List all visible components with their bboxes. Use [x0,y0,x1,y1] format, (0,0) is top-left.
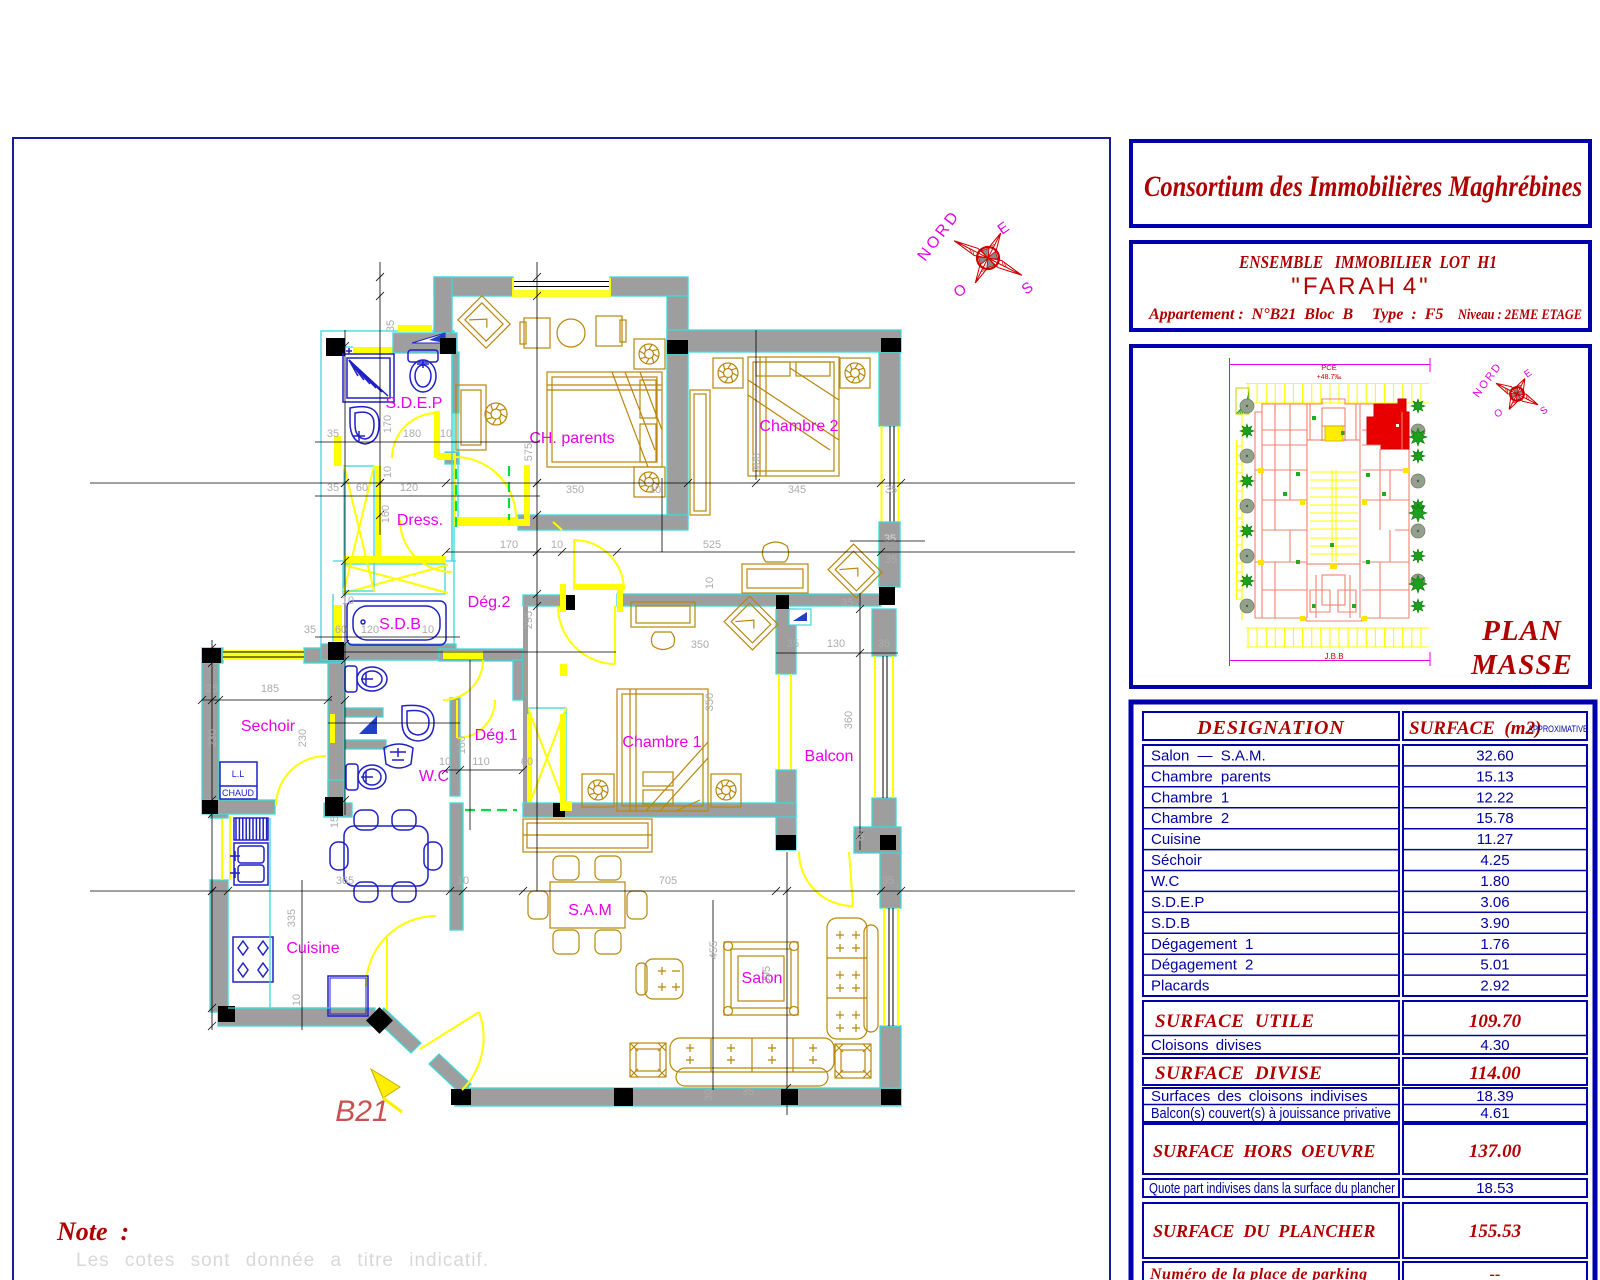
svg-text:S.D.B: S.D.B [379,616,421,633]
svg-text:35: 35 [787,638,799,650]
svg-text:Consortium des Immobilières Ma: Consortium des Immobilières Maghrébines [1144,170,1582,203]
svg-text:185: 185 [261,683,279,695]
svg-text:4.25: 4.25 [1480,852,1509,869]
svg-text:137.00: 137.00 [1469,1141,1522,1162]
svg-text:10: 10 [704,577,716,589]
svg-text:455: 455 [708,941,720,959]
svg-text:Chambre 2: Chambre 2 [1151,810,1229,827]
svg-text:35: 35 [304,624,316,636]
svg-text:SURFACE HORS OEUVRE: SURFACE HORS OEUVRE [1153,1141,1375,1161]
svg-text:10: 10 [422,624,434,636]
svg-text:1.80: 1.80 [1480,873,1509,890]
svg-text:Dégagement 2: Dégagement 2 [1151,957,1253,974]
svg-text:120: 120 [400,482,418,494]
svg-text:30: 30 [703,1089,715,1101]
svg-text:5.01: 5.01 [1480,957,1509,974]
svg-text:Niveau : 2EME ETAGE: Niveau : 2EME ETAGE [1457,307,1582,323]
svg-text:Balcon: Balcon [805,748,854,765]
svg-text:35: 35 [742,1086,754,1098]
svg-text:35: 35 [885,484,897,496]
svg-text:60: 60 [356,482,368,494]
svg-text:J.B.B: J.B.B [1324,652,1343,661]
svg-text:109.70: 109.70 [1469,1011,1522,1032]
svg-text:35: 35 [385,320,397,332]
svg-text:Dress.: Dress. [397,512,443,529]
svg-text:365: 365 [336,875,354,887]
svg-text:S.D.B: S.D.B [1151,915,1190,932]
svg-text:35: 35 [885,554,897,566]
svg-text:15.78: 15.78 [1476,810,1514,827]
svg-text:35: 35 [327,482,339,494]
svg-text:+48.7‰: +48.7‰ [1317,374,1342,381]
svg-text:Surfaces des cloisons indivise: Surfaces des cloisons indivises [1151,1088,1368,1105]
svg-text:230: 230 [297,729,309,747]
svg-text:Appartement : N°B21 Bloc B: Appartement : N°B21 Bloc B [1148,306,1354,323]
svg-text:Cuisine: Cuisine [286,940,339,957]
svg-text:10: 10 [440,428,452,440]
svg-text:400: 400 [751,453,763,471]
svg-text:35: 35 [878,638,890,650]
svg-text:10: 10 [457,875,469,887]
svg-text:PCE: PCE [1321,363,1336,372]
svg-text:170: 170 [500,539,518,551]
svg-text:3.90: 3.90 [1480,915,1509,932]
svg-text:2.92: 2.92 [1480,978,1509,995]
svg-text:25: 25 [206,683,218,695]
svg-text:10: 10 [439,756,451,768]
svg-text:CH. parents: CH. parents [529,430,614,447]
svg-text:350: 350 [566,484,584,496]
svg-text:160: 160 [456,736,468,754]
svg-text:3.06: 3.06 [1480,894,1509,911]
svg-text:15.13: 15.13 [1476,768,1514,785]
svg-text:ENSEMBLE IMMOBILIER LOT H1: ENSEMBLE IMMOBILIER LOT H1 [1238,252,1497,272]
svg-text:32.60: 32.60 [1476,748,1514,765]
svg-text:705: 705 [659,875,677,887]
svg-text:L.L: L.L [232,769,245,779]
svg-text:S.D.E.P: S.D.E.P [386,395,443,412]
svg-text:395: 395 [761,966,773,984]
svg-text:10: 10 [291,994,303,1006]
svg-text:S.A.M: S.A.M [568,902,612,919]
svg-text:SURFACE DIVISE: SURFACE DIVISE [1155,1063,1322,1084]
svg-text:35: 35 [884,533,896,545]
svg-text:335: 335 [286,909,298,927]
svg-text:575: 575 [523,443,535,461]
svg-text:CHAUD: CHAUD [222,788,255,798]
svg-text:Chambre 1: Chambre 1 [1151,789,1229,806]
svg-text:SURFACE UTILE: SURFACE UTILE [1155,1011,1314,1032]
svg-text:Chambre parents: Chambre parents [1151,768,1271,785]
svg-text:60: 60 [855,829,867,841]
svg-text:Cloisons divises: Cloisons divises [1151,1037,1262,1054]
svg-text:4.30: 4.30 [1480,1037,1509,1054]
svg-text:"FARAH 4": "FARAH 4" [1291,273,1430,300]
svg-text:10: 10 [342,595,354,607]
svg-text:PLAN: PLAN [1481,615,1562,647]
svg-text:W.C: W.C [1151,873,1179,890]
svg-text:170: 170 [382,415,394,433]
svg-text:10: 10 [649,484,661,496]
svg-text:110: 110 [472,756,490,768]
svg-text:W.C: W.C [419,768,449,785]
svg-text:360: 360 [843,711,855,729]
svg-text:SURFACE (m2): SURFACE (m2) [1409,718,1541,739]
svg-text:12.22: 12.22 [1476,789,1514,806]
svg-text:120: 120 [361,624,379,636]
svg-text:18.53: 18.53 [1476,1180,1514,1197]
svg-text:Type : F5: Type : F5 [1372,306,1443,323]
svg-text:S.D.E.P: S.D.E.P [1151,894,1204,911]
svg-text:525: 525 [703,539,721,551]
svg-text:MASSE: MASSE [1470,649,1573,681]
svg-text:130: 130 [827,638,845,650]
svg-text:Dég.2: Dég.2 [468,594,511,611]
svg-text:15: 15 [329,816,341,828]
svg-text:180: 180 [403,428,421,440]
svg-text:230: 230 [207,729,219,747]
svg-text:1.76: 1.76 [1480,936,1509,953]
svg-text:160: 160 [380,505,392,523]
svg-text:155.53: 155.53 [1469,1221,1521,1242]
svg-text:B21: B21 [335,1095,388,1128]
svg-text:DESIGNATION: DESIGNATION [1196,717,1345,739]
svg-text:Quote part indivises dans la s: Quote part indivises dans la surface du … [1149,1180,1395,1197]
svg-text:Chambre 2: Chambre 2 [759,418,838,435]
svg-text:Dégagement 1: Dégagement 1 [1151,936,1253,953]
svg-text:Séchoir: Séchoir [1151,852,1202,869]
svg-text:35: 35 [841,597,853,609]
svg-text:Note :: Note : [56,1217,129,1246]
svg-text:10: 10 [382,466,394,478]
svg-text:10: 10 [551,539,563,551]
svg-text:60: 60 [521,756,533,768]
svg-text:35: 35 [882,875,894,887]
svg-text:Dég.1: Dég.1 [475,727,518,744]
svg-text:18.39: 18.39 [1476,1088,1514,1105]
svg-text:Sechoir: Sechoir [241,718,296,735]
svg-text:295: 295 [523,611,535,629]
svg-text:Chambre 1: Chambre 1 [622,734,701,751]
svg-text:114.00: 114.00 [1469,1063,1521,1084]
svg-text:Balcon(s) couvert(s) à jouissa: Balcon(s) couvert(s) à jouissance privat… [1151,1105,1391,1122]
svg-text:Placards: Placards [1151,978,1209,995]
svg-text:SURFACE DU PLANCHER: SURFACE DU PLANCHER [1153,1221,1375,1241]
svg-text:350: 350 [691,639,709,651]
svg-text:Les cotes sont donnée a titre: Les cotes sont donnée a titre indicatif. [76,1250,489,1271]
svg-text:4.61: 4.61 [1480,1105,1509,1122]
svg-text:345: 345 [788,484,806,496]
svg-text:Salon — S.A.M.: Salon — S.A.M. [1151,748,1266,765]
svg-text:APPROXIMATIVE: APPROXIMATIVE [1528,724,1588,735]
svg-text:350: 350 [704,693,716,711]
svg-text:Numéro de la place de parking: Numéro de la place de parking [1149,1266,1368,1280]
svg-text:35: 35 [327,428,339,440]
svg-text:11.27: 11.27 [1477,831,1513,848]
svg-text:--: -- [1490,1266,1501,1280]
svg-text:Cuisine: Cuisine [1151,831,1201,848]
